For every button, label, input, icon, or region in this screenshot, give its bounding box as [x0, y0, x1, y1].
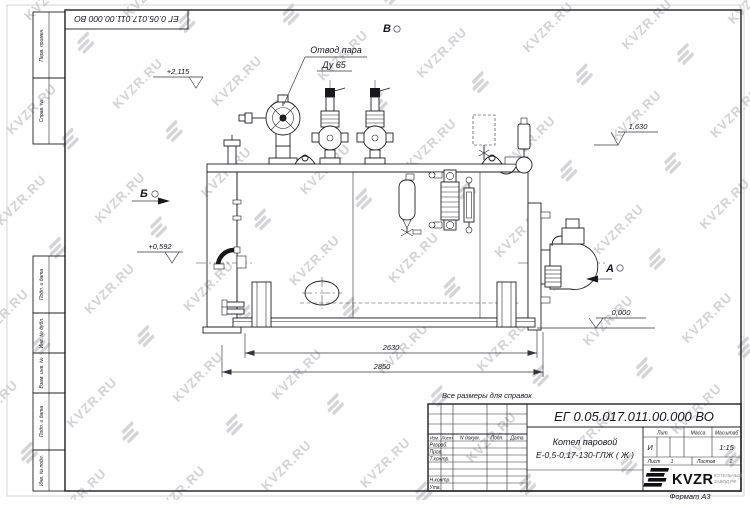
lit-label: Лит.: [656, 431, 669, 437]
support-leg-left: [252, 282, 271, 327]
callout-line1: Отвод пара: [310, 45, 361, 55]
watermark-layer: [0, 0, 750, 500]
kvzr-logo-text: KVZR: [672, 472, 714, 488]
skid-rail: [233, 318, 535, 327]
col-list: Лист: [440, 436, 453, 441]
col-sign: Подп.: [490, 436, 503, 442]
logo-caption-line2: ЗАВОД.РФ: [714, 479, 737, 484]
side-box-label: Справ. №: [39, 99, 45, 122]
boiler-drawing-svg: KVZR.RU KVZR.RU Перв. примен. Справ. № П…: [0, 0, 750, 500]
title-doc-number: ЕГ 0.05.017.011.00.000 ВО: [554, 409, 714, 424]
view-b-label: Б: [140, 188, 148, 200]
sheet-number: 1: [671, 459, 674, 465]
drawing-sheet: KVZR.RU KVZR.RU Перв. примен. Справ. № П…: [0, 0, 750, 500]
top-deck: [207, 164, 528, 172]
side-box-label: Инв. № дубл.: [39, 318, 45, 349]
scale-value: 1:15: [719, 443, 734, 452]
side-box-label: Подп. и дата: [39, 406, 45, 438]
burner-mounting-plate: [528, 203, 541, 330]
sheet-label: Лист: [647, 459, 661, 465]
sheets-total: 2: [729, 459, 733, 465]
lit-value: И: [647, 443, 653, 452]
side-box-label: Перв. примен.: [39, 28, 45, 61]
row-checked: Пров.: [430, 450, 443, 456]
wall-fitting-1: [233, 200, 241, 204]
reference-note: Все размеры для справок: [442, 391, 532, 400]
row-ncontrol: Н.контр.: [430, 478, 451, 484]
side-box-label: Инв. № подл.: [39, 455, 45, 486]
mass-label: Масса: [691, 431, 706, 437]
col-doc: N докум.: [460, 436, 480, 442]
row-developed: Разраб.: [430, 443, 448, 449]
elev-door-value: +0,592: [148, 242, 172, 251]
format-label: Формат А3: [669, 492, 711, 500]
corner-doc-number: ЕГ 0.05.017.011.00.000 ВО: [74, 14, 179, 24]
elev-right-value: 1,630: [629, 122, 649, 131]
product-name-line1: Котел паровой: [553, 437, 618, 447]
side-box-label: Подп. и дата: [39, 269, 45, 301]
dim-2850-value: 2850: [373, 362, 392, 371]
elev-valves-value: +2,115: [167, 67, 190, 76]
view-v-label: В: [383, 23, 391, 35]
wall-fitting-2: [233, 216, 241, 220]
scale-label: Масштаб: [715, 431, 739, 437]
view-a-label: А: [605, 263, 614, 275]
side-box-label: Взам. инв. №: [39, 357, 45, 389]
dim-2630-value: 2630: [382, 343, 401, 352]
support-leg-right: [497, 282, 516, 327]
row-tcontrol: Т.контр.: [430, 457, 450, 463]
sheets-label: Листов: [696, 459, 716, 465]
callout-line2: Ду 65: [321, 60, 346, 70]
col-izm: Изм.: [430, 436, 439, 441]
elev-zero-value: 0,000: [612, 308, 632, 317]
product-name-line2: Е-0,5-0,17-130-ГЛЖ ( Ж ): [536, 450, 634, 460]
logo-caption-line1: КОТЕЛЬНЫЙ: [714, 473, 742, 478]
col-date: Дата: [509, 436, 523, 442]
row-approved: Утв.: [430, 485, 441, 491]
